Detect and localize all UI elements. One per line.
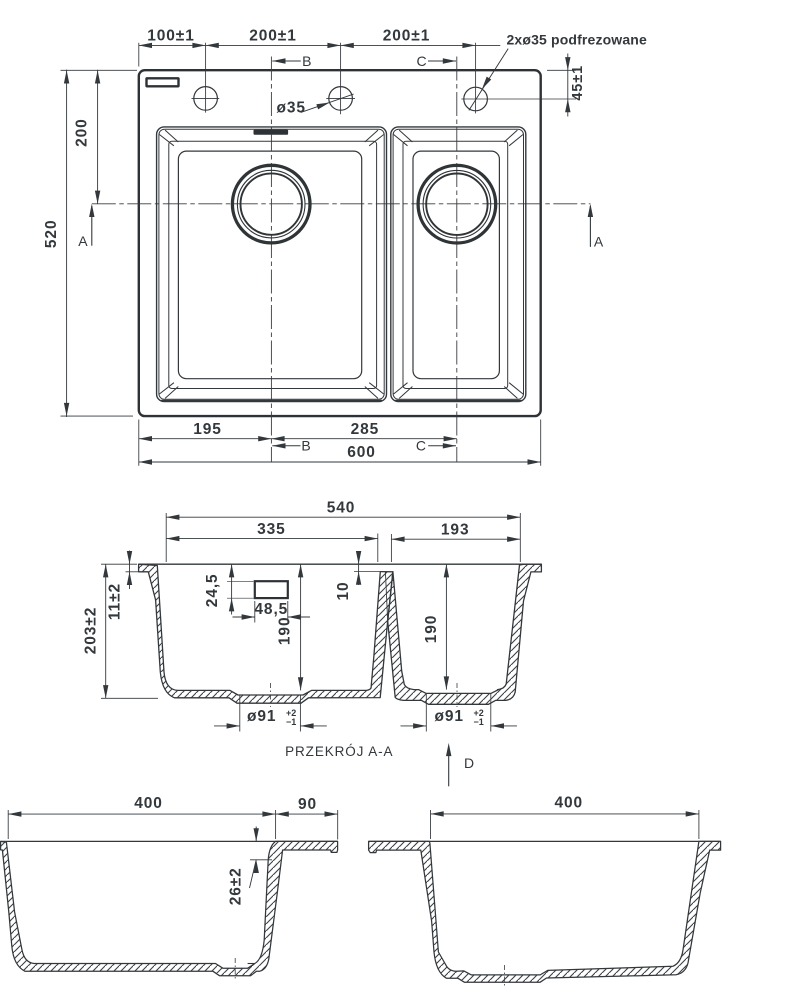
svg-text:B: B [302,53,311,69]
svg-text:45±1: 45±1 [570,65,586,101]
svg-text:A: A [78,233,88,249]
svg-text:540: 540 [327,499,356,516]
svg-text:190: 190 [423,615,440,644]
svg-text:200: 200 [74,118,91,147]
svg-text:203±2: 203±2 [83,607,100,655]
svg-text:11±2: 11±2 [106,583,123,620]
svg-text:90: 90 [298,796,317,813]
svg-text:190: 190 [277,617,294,646]
svg-text:ø91: ø91 [435,708,464,725]
svg-text:285: 285 [351,421,380,438]
svg-text:B: B [301,438,310,454]
svg-text:193: 193 [441,521,470,538]
svg-text:−1: −1 [474,717,484,727]
svg-text:335: 335 [257,521,286,538]
svg-text:C: C [416,438,426,454]
svg-text:400: 400 [134,795,163,812]
svg-text:26±2: 26±2 [228,867,245,905]
svg-text:520: 520 [43,220,60,249]
svg-text:2xø35 podfrezowane: 2xø35 podfrezowane [507,32,647,48]
svg-text:10: 10 [335,581,352,600]
svg-text:48,5: 48,5 [254,601,288,618]
svg-text:C: C [417,53,427,69]
svg-text:ø91: ø91 [247,708,276,725]
svg-text:A: A [594,234,604,250]
svg-text:100±1: 100±1 [147,28,195,45]
svg-text:200±1: 200±1 [249,28,297,45]
svg-text:PRZEKRÓJ A-A: PRZEKRÓJ A-A [285,744,393,759]
svg-text:D: D [464,755,474,771]
svg-text:ø35: ø35 [277,100,306,117]
svg-text:400: 400 [555,795,584,812]
svg-text:24,5: 24,5 [204,573,221,607]
svg-text:600: 600 [347,444,376,461]
svg-text:200±1: 200±1 [383,28,431,45]
svg-text:−1: −1 [286,717,296,727]
svg-text:195: 195 [193,421,222,438]
